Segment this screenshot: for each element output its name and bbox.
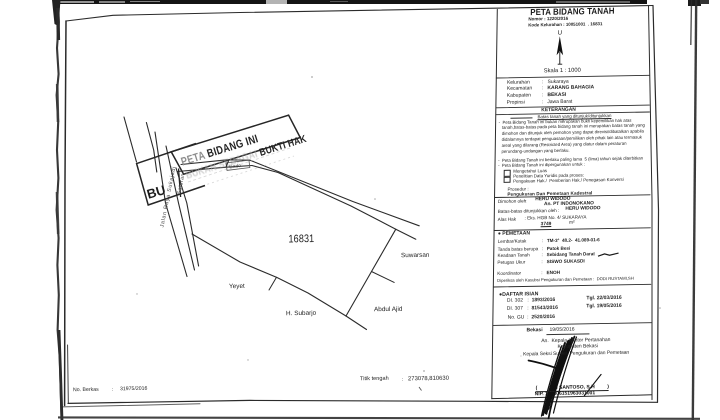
- svg-text:16831: 16831: [288, 233, 314, 245]
